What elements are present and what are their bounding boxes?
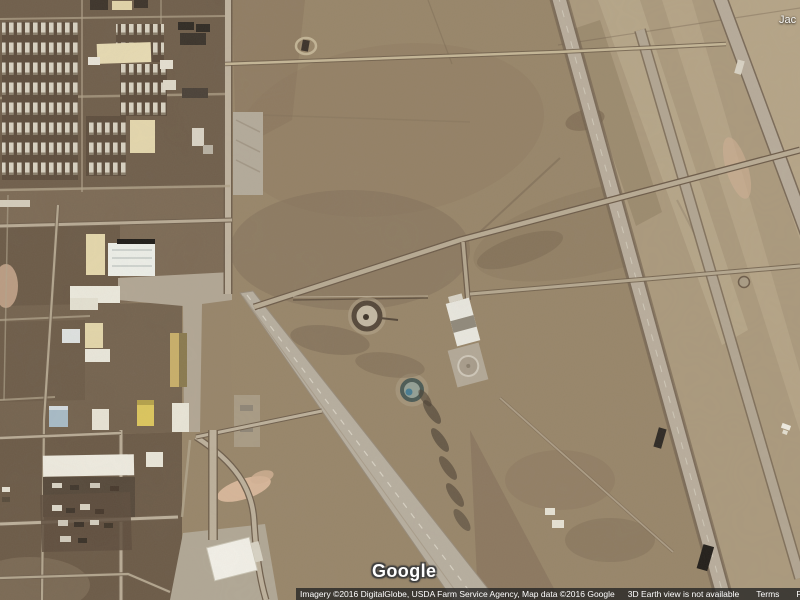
earth-view-notice: 3D Earth view is not available <box>628 588 740 600</box>
terms-link[interactable]: Terms <box>756 588 779 600</box>
maps-viewport: Jac Google Imagery ©2016 DigitalGlobe, U… <box>0 0 800 600</box>
terrain-grain-overlay <box>0 0 800 600</box>
privacy-link[interactable]: Privacy <box>796 588 800 600</box>
satellite-map-canvas[interactable] <box>0 0 800 600</box>
google-logo[interactable]: Google <box>372 561 436 582</box>
place-label-partial: Jac <box>779 14 796 26</box>
imagery-credits: Imagery ©2016 DigitalGlobe, USDA Farm Se… <box>300 588 615 600</box>
attribution-bar: Imagery ©2016 DigitalGlobe, USDA Farm Se… <box>296 588 800 600</box>
